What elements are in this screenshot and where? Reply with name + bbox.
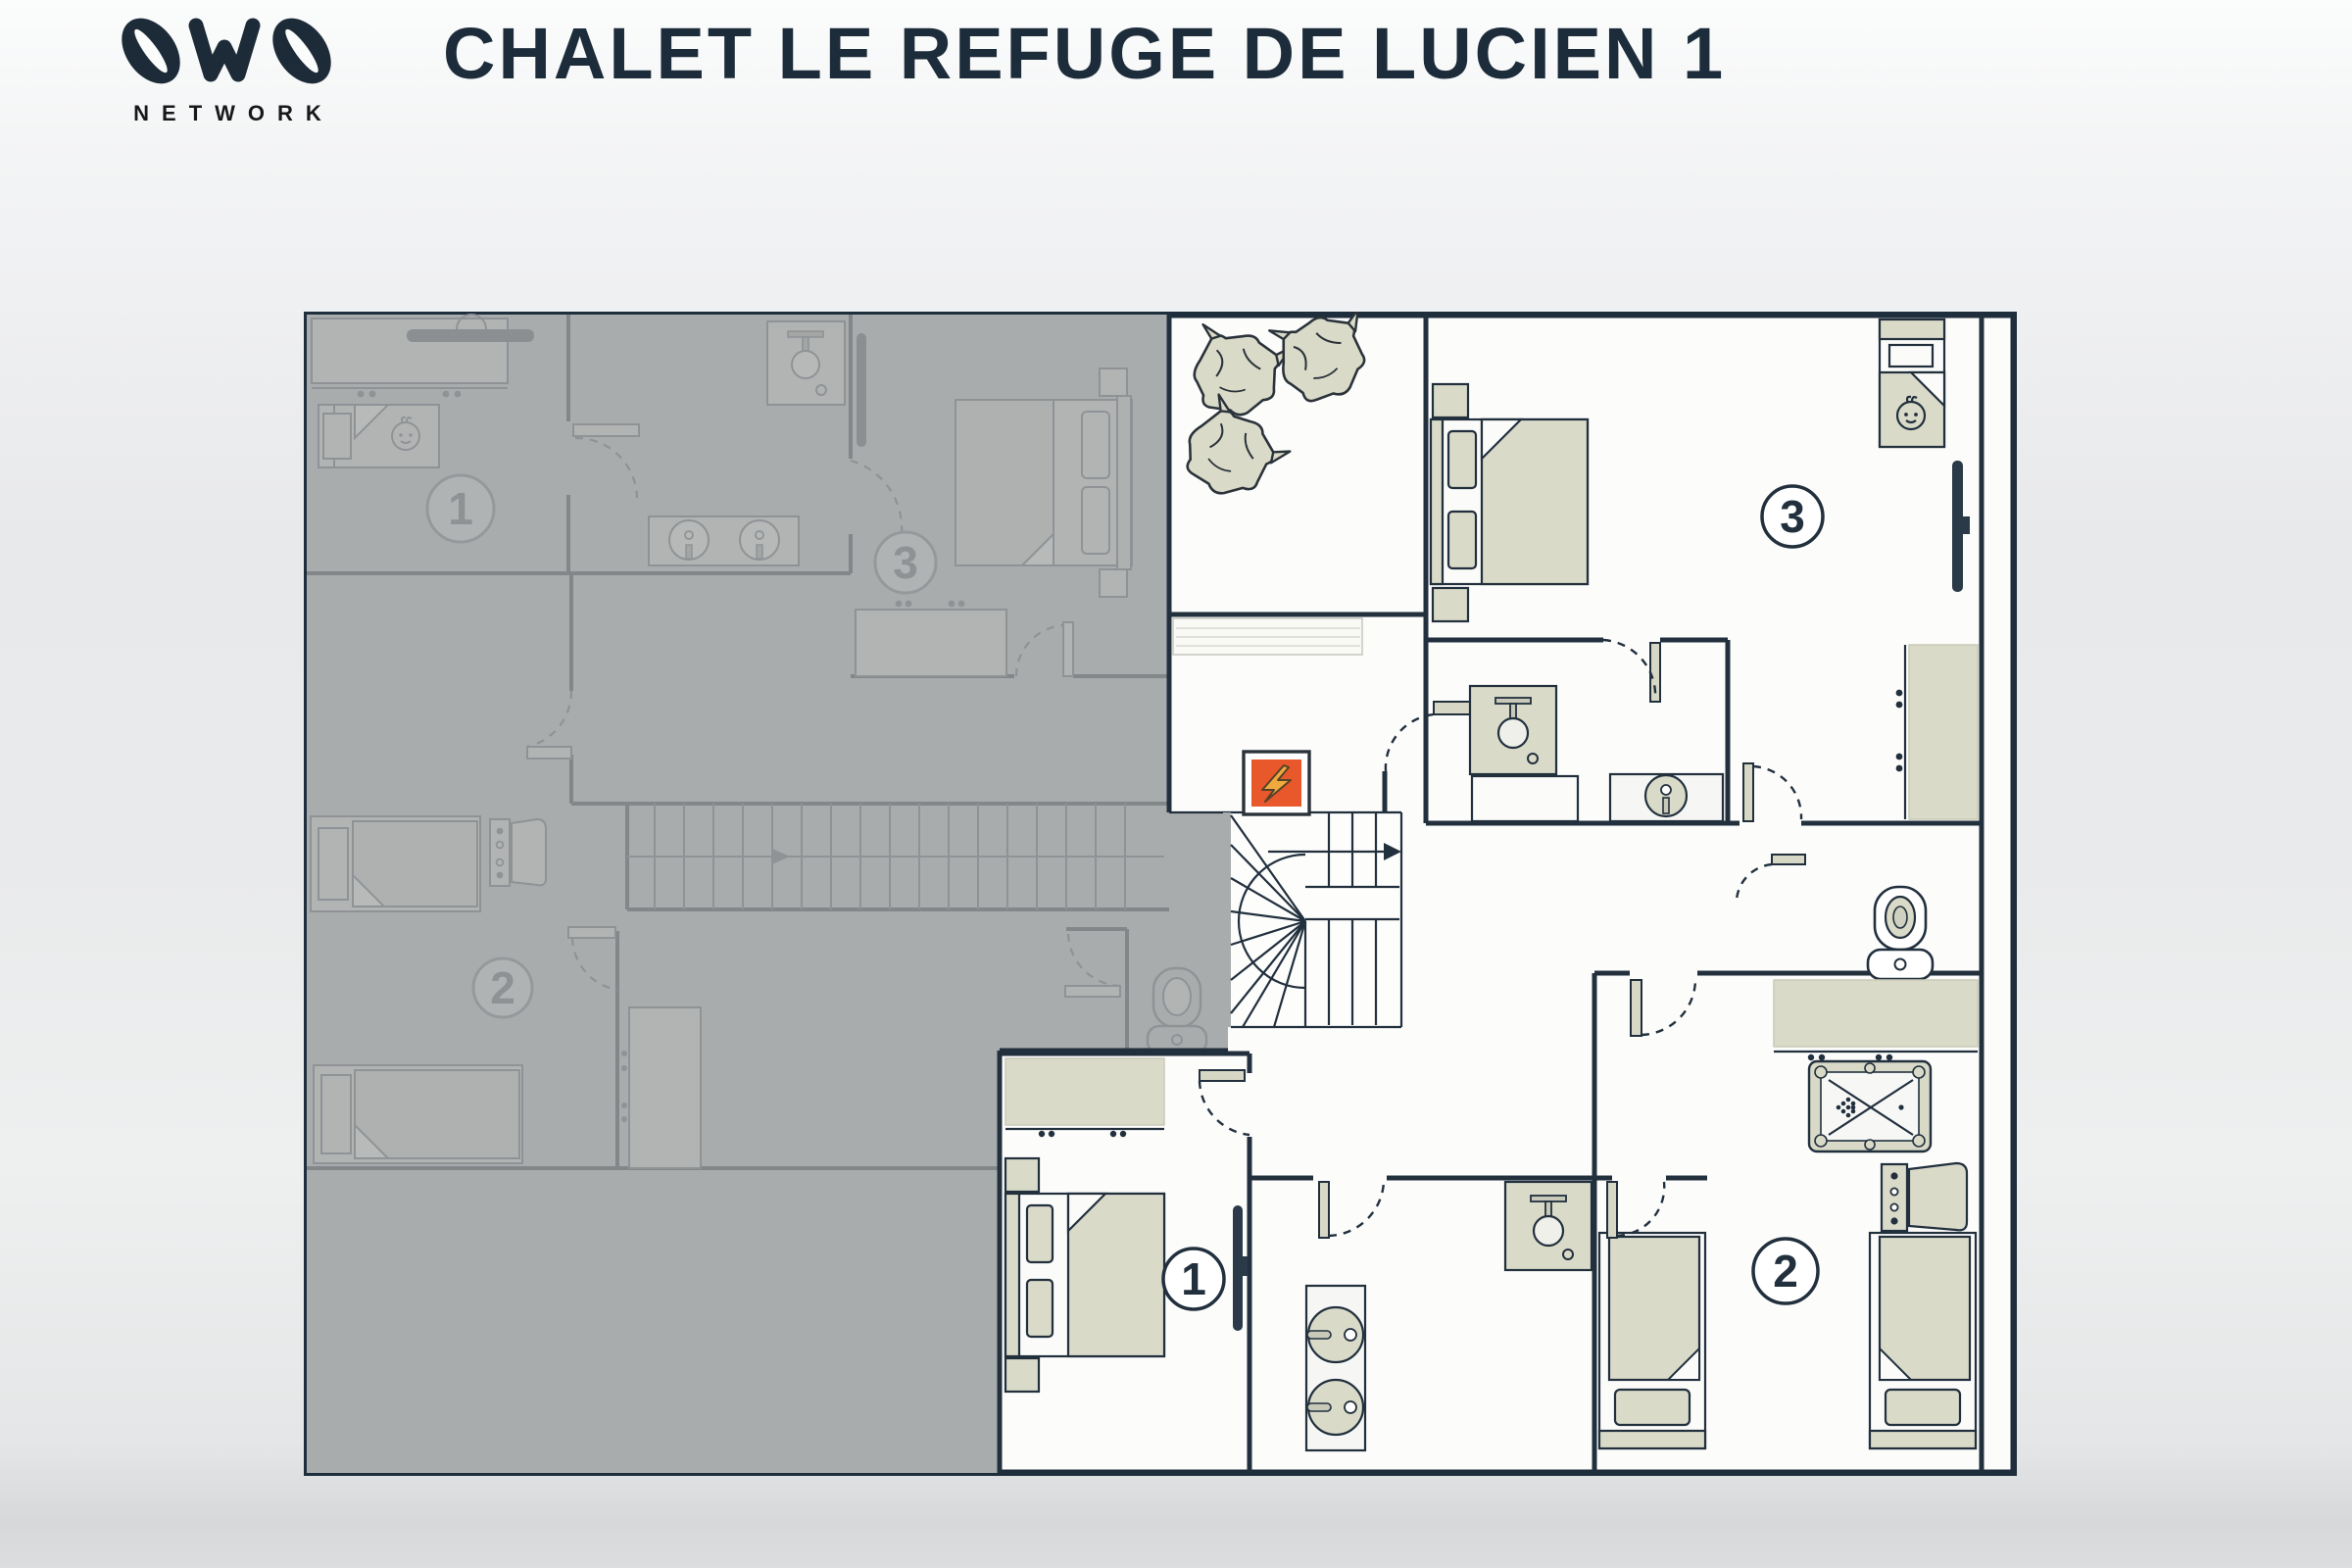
single-bed (1870, 1233, 1976, 1448)
room-label-inactive-1: 1 (427, 475, 494, 542)
door-leaf (1063, 622, 1073, 676)
cue-ball (1898, 1104, 1903, 1109)
ovo-logo-icon (110, 10, 345, 92)
brand-network-label: NETWORK (110, 101, 345, 126)
single-bed (1599, 1233, 1705, 1448)
door-leaf (1631, 980, 1641, 1036)
double-sink-vanity (1306, 1286, 1365, 1450)
wardrobe (621, 1007, 701, 1168)
armchair (1882, 1163, 1967, 1231)
door-leaf (568, 927, 615, 938)
shower-icon (767, 321, 845, 405)
baby-cot (318, 405, 439, 467)
door-leaf (1743, 763, 1753, 821)
logo-o-right (261, 10, 343, 92)
baby-cot (1880, 319, 1944, 447)
room-label-1: 1 (1163, 1249, 1224, 1309)
counter (1472, 776, 1578, 821)
sink-icon (1610, 774, 1723, 821)
dresser (312, 318, 508, 383)
door-leaf (1319, 1182, 1329, 1238)
door-leaf (1200, 1070, 1245, 1081)
page-title: CHALET LE REFUGE DE LUCIEN 1 (443, 12, 2129, 95)
nightstand (1433, 384, 1468, 417)
room-label-3: 3 (1762, 486, 1823, 547)
svg-text:1: 1 (1181, 1253, 1206, 1304)
double-sink-vanity (649, 516, 799, 565)
single-bed (311, 816, 480, 911)
toilet-icon (1148, 968, 1206, 1053)
svg-text:3: 3 (893, 537, 918, 588)
tv-icon (857, 333, 866, 447)
shower-icon (1470, 686, 1556, 774)
logo-o-left (110, 10, 192, 92)
single-bed (314, 1065, 522, 1163)
toilet-icon (1868, 887, 1933, 979)
electrical-panel (1244, 752, 1309, 814)
logo-w-middle (196, 25, 253, 74)
door-leaf (1772, 855, 1805, 864)
double-bed (1431, 419, 1588, 584)
dresser (856, 601, 1006, 676)
nightstand (1100, 368, 1127, 396)
room-label-inactive-3: 3 (875, 532, 936, 593)
room-label-inactive-2: 2 (473, 958, 532, 1017)
brand-logo: NETWORK (110, 10, 345, 126)
double-bed (955, 396, 1132, 569)
door-leaf (1065, 986, 1120, 997)
page: NETWORK CHALET LE REFUGE DE LUCIEN 1 (0, 0, 2352, 1568)
nightstand (1005, 1158, 1039, 1192)
door-leaf (573, 424, 639, 436)
dresser (1005, 1058, 1164, 1137)
wardrobe (1909, 645, 1978, 819)
room-label-2: 2 (1753, 1239, 1818, 1303)
nightstand (1433, 588, 1468, 621)
svg-text:3: 3 (1780, 491, 1805, 542)
stair-landing-band (1173, 618, 1362, 655)
door-leaf (1607, 1182, 1617, 1238)
nightstand (1005, 1358, 1039, 1392)
svg-text:1: 1 (448, 483, 473, 534)
nightstand (1100, 569, 1127, 597)
floor-plan: 1 (304, 312, 2017, 1476)
double-bed (1005, 1194, 1164, 1356)
pool-table (1809, 1061, 1931, 1151)
svg-text:2: 2 (490, 962, 515, 1013)
shower-icon (1505, 1182, 1592, 1270)
door-leaf (527, 747, 571, 759)
armchair (490, 819, 546, 886)
svg-text:2: 2 (1773, 1246, 1798, 1297)
